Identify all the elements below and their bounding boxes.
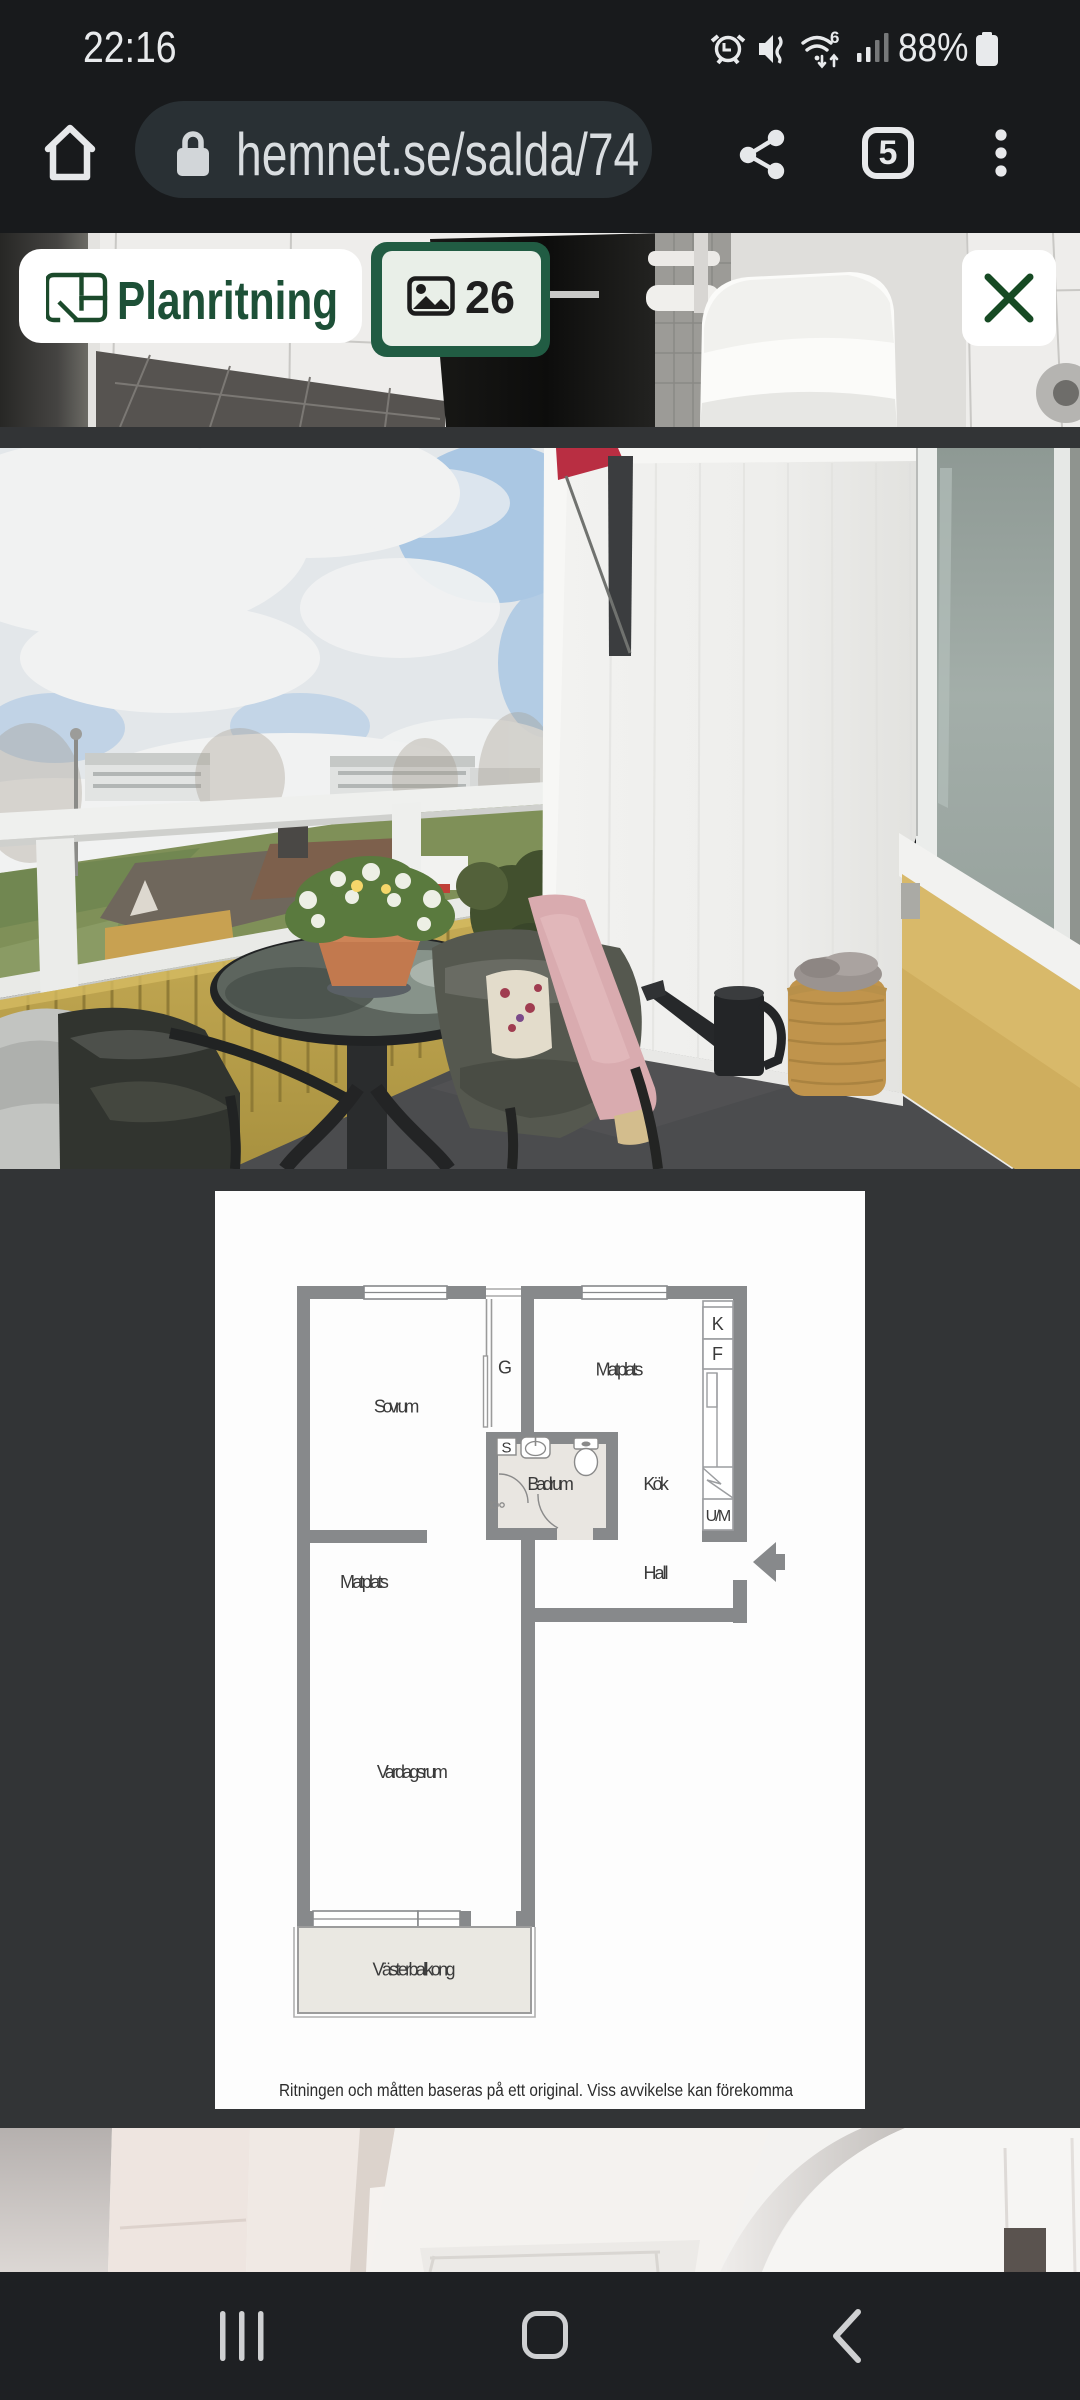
svg-text:F: F: [712, 1344, 723, 1364]
svg-text:U/M: U/M: [706, 1508, 732, 1525]
svg-text:Västerbalkong: Västerbalkong: [373, 1960, 456, 1980]
svg-text:S: S: [501, 1440, 511, 1457]
svg-text:K: K: [712, 1314, 724, 1334]
svg-text:Sovrum: Sovrum: [374, 1397, 420, 1417]
svg-text:6: 6: [830, 28, 839, 47]
svg-text:Kök: Kök: [643, 1474, 670, 1494]
svg-text:Matplats: Matplats: [596, 1360, 644, 1380]
svg-text:Ritningen och måtten baseras p: Ritningen och måtten baseras på ett orig…: [279, 2080, 793, 2100]
svg-text:Vardagsrum: Vardagsrum: [377, 1762, 448, 1782]
svg-text:G: G: [498, 1357, 512, 1377]
svg-text:Hall: Hall: [644, 1563, 669, 1583]
svg-text:Matplats: Matplats: [340, 1572, 389, 1592]
svg-text:Badrum: Badrum: [527, 1474, 574, 1494]
